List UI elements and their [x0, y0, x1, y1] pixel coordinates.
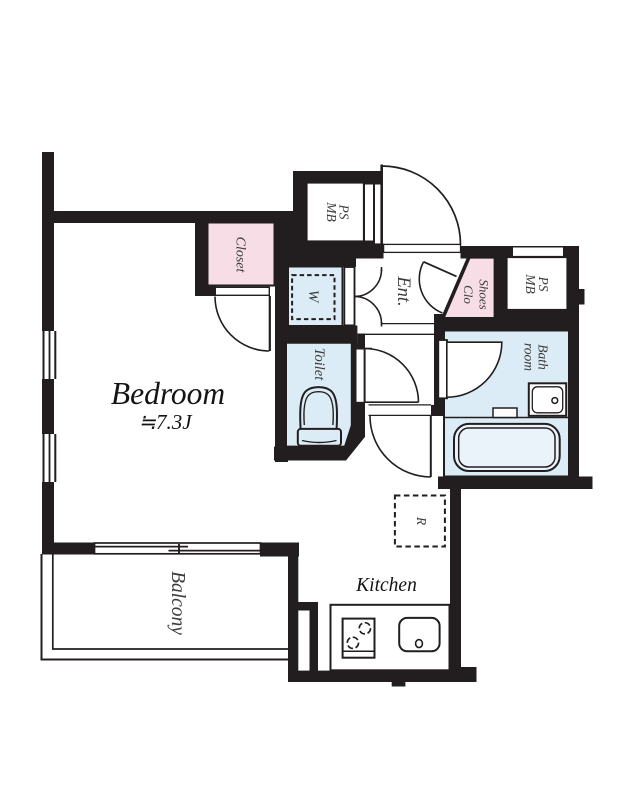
svg-text:Bedroom: Bedroom [111, 376, 225, 411]
svg-text:Bathroom: Bathroom [521, 343, 550, 371]
svg-text:W: W [305, 290, 321, 304]
svg-text:Closet: Closet [232, 237, 247, 274]
svg-text:PSMB: PSMB [324, 201, 352, 222]
svg-text:PSMB: PSMB [523, 273, 551, 294]
svg-text:Kitchen: Kitchen [355, 575, 417, 596]
svg-text:Toilet: Toilet [311, 348, 327, 381]
svg-text:≒7.3J: ≒7.3J [138, 410, 193, 434]
svg-text:Balcony: Balcony [167, 571, 188, 635]
svg-text:Ent.: Ent. [393, 275, 413, 306]
svg-text:R: R [414, 516, 429, 526]
